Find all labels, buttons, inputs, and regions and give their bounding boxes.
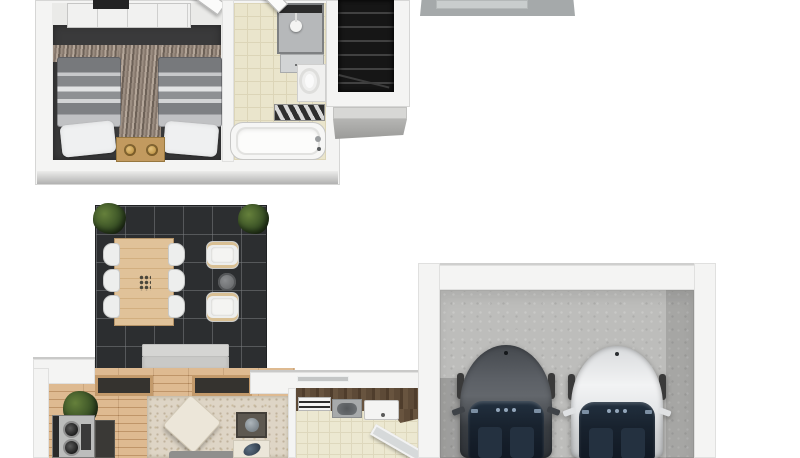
toilet-bowl <box>299 68 320 94</box>
upper-bottom-wall-shadow <box>37 171 338 184</box>
car-white-vent-right <box>645 410 652 414</box>
kitchen-window-slit <box>297 376 349 382</box>
garage-wall-top <box>418 263 716 290</box>
dining-table <box>114 238 174 326</box>
bed-left <box>57 55 121 161</box>
patio-door-mat-right <box>192 375 252 396</box>
table-lamp-left <box>124 144 136 156</box>
car-dark-glass <box>468 401 544 458</box>
hifi-stereo <box>52 415 95 458</box>
car-white-dash-dot-3 <box>623 409 627 413</box>
dining-chair-l2 <box>103 269 120 292</box>
under-stair-parapet-front <box>333 119 407 139</box>
nightstand <box>116 137 165 162</box>
armchair-top-cushion <box>211 247 234 263</box>
bed-right <box>158 55 222 161</box>
patio-door-mat-left <box>95 375 153 396</box>
terrace <box>95 205 267 372</box>
dining-chair-l1 <box>103 243 120 266</box>
side-table-dark <box>236 412 267 438</box>
car-dark-seat-right <box>510 427 534 458</box>
table-lamp-right <box>146 144 158 156</box>
car-dark-dash-dot-2 <box>504 408 508 412</box>
top-right-parapet-inner <box>436 0 528 9</box>
garage <box>418 263 716 458</box>
car-dark-dash-dot-1 <box>496 408 500 412</box>
ground-floor-plan <box>0 200 800 458</box>
decor-bowl-gray <box>245 418 259 432</box>
dining-chair-r2 <box>168 269 185 292</box>
bed-left-pillow <box>59 120 116 157</box>
terrace-plant-left <box>93 203 126 234</box>
kitchen-wall-left <box>288 388 296 458</box>
bathtub-faucet <box>315 136 321 142</box>
car-dark <box>460 345 552 458</box>
terrace-plant-right <box>238 204 269 234</box>
dining-chair-r1 <box>168 243 185 266</box>
car-dark-antenna <box>504 351 508 355</box>
bench-step-top <box>142 344 229 357</box>
dining-chair-l3 <box>103 295 120 318</box>
stereo-slot <box>81 424 91 450</box>
under-stair-parapet <box>333 107 407 139</box>
top-right-parapet <box>420 0 575 16</box>
car-white-seat-right <box>621 428 645 458</box>
decor-bowl-blue <box>242 441 263 458</box>
car-white-glass <box>579 402 655 458</box>
shower <box>277 3 324 54</box>
bathtub <box>230 122 326 160</box>
car-white-seat-left <box>589 428 613 458</box>
wardrobe <box>67 3 191 28</box>
living-room-wall-left <box>33 368 49 458</box>
bathtub-drain <box>317 147 321 151</box>
car-white-vent-left <box>582 410 589 414</box>
round-side-table <box>218 273 236 291</box>
garage-wall-left <box>418 263 440 458</box>
bedroom <box>52 3 222 160</box>
car-white-antenna <box>615 352 619 356</box>
car-white <box>571 346 663 458</box>
car-dark-seat-left <box>478 427 502 458</box>
garage-floor-shadow-right <box>666 290 694 458</box>
oven-front <box>298 397 331 411</box>
car-dark-dash-dot-3 <box>512 408 516 412</box>
bed-right-blanket <box>158 57 222 127</box>
kitchen-sink <box>332 399 362 418</box>
car-white-dash-dot-2 <box>615 409 619 413</box>
towel-radiator <box>274 104 325 121</box>
upper-floor-plan <box>0 0 800 200</box>
bathroom <box>234 3 326 160</box>
winder-step-line <box>339 74 390 89</box>
bed-right-pillow <box>163 121 220 158</box>
side-table-cream <box>233 440 270 458</box>
staircase <box>338 0 394 92</box>
dining-chair-r3 <box>168 295 185 318</box>
shower-head-arm <box>295 13 297 22</box>
stereo-knob-top <box>63 421 80 438</box>
appliance-button <box>381 413 385 417</box>
kitchen-appliance <box>364 400 399 420</box>
stereo-knob-bottom <box>63 439 80 456</box>
floor-plan-render <box>0 0 800 458</box>
car-dark-vent-left <box>471 409 478 413</box>
garage-wall-right <box>694 263 716 458</box>
table-centerpiece <box>139 275 151 291</box>
sink-basin <box>337 403 357 415</box>
under-stair-parapet-top <box>333 107 407 119</box>
bed-left-blanket <box>57 57 121 127</box>
armchair-bottom <box>206 292 239 322</box>
headboard-runner <box>119 45 161 148</box>
media-shelf <box>95 420 115 458</box>
wall-tv <box>93 0 129 9</box>
bathtub-basin <box>236 127 320 155</box>
armchair-bottom-cushion <box>211 298 234 316</box>
car-dark-vent-right <box>534 409 541 413</box>
car-white-dash-dot-1 <box>607 409 611 413</box>
armchair-top <box>206 241 239 269</box>
